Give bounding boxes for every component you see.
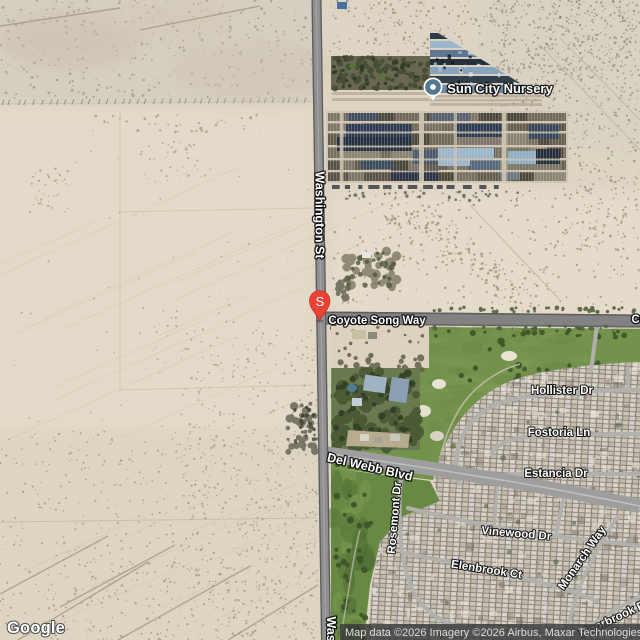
- svg-text:Estancia Dr: Estancia Dr: [524, 468, 588, 480]
- svg-text:S: S: [315, 294, 324, 309]
- svg-text:Google: Google: [7, 619, 65, 637]
- svg-text:Fostoria Ln: Fostoria Ln: [528, 427, 591, 439]
- svg-text:Coyote Song Way: Coyote Song Way: [328, 315, 426, 327]
- svg-text:Coyote Song Way: Coyote Song Way: [631, 314, 640, 326]
- svg-text:Hollister Dr: Hollister Dr: [531, 385, 594, 397]
- svg-text:Sun City Nursery: Sun City Nursery: [447, 81, 553, 96]
- svg-text:Washington St: Washington St: [324, 616, 338, 640]
- svg-text:Map data ©2026 Imagery ©2026 A: Map data ©2026 Imagery ©2026 Airbus, Max…: [345, 627, 640, 639]
- svg-text:Washington St: Washington St: [313, 171, 327, 259]
